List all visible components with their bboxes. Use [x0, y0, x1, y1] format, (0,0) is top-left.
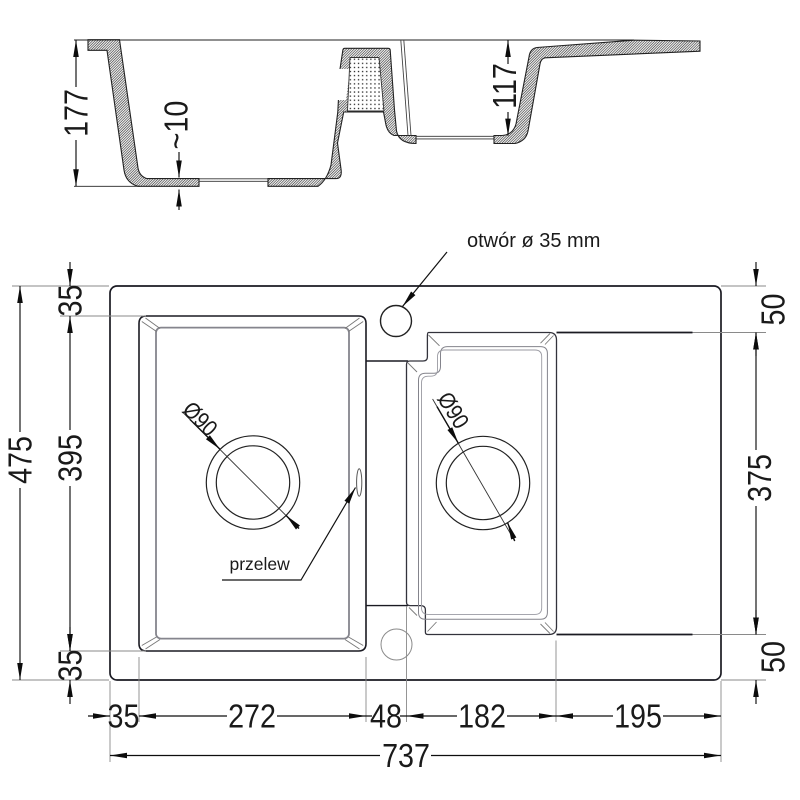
svg-text:35: 35: [52, 650, 89, 682]
svg-text:475: 475: [2, 436, 39, 484]
svg-text:35: 35: [52, 285, 89, 317]
svg-text:48: 48: [370, 698, 402, 735]
svg-text:przelew: przelew: [230, 554, 291, 574]
svg-text:~10: ~10: [158, 101, 195, 150]
svg-text:375: 375: [741, 454, 778, 502]
svg-text:182: 182: [458, 698, 506, 735]
svg-text:195: 195: [614, 698, 662, 735]
svg-text:35: 35: [108, 698, 140, 735]
svg-text:272: 272: [228, 698, 276, 735]
svg-text:50: 50: [755, 641, 792, 673]
svg-text:117: 117: [486, 63, 523, 109]
svg-text:177: 177: [58, 89, 95, 137]
svg-text:otwór ø 35 mm: otwór ø 35 mm: [467, 230, 600, 252]
svg-text:395: 395: [52, 434, 89, 482]
svg-text:50: 50: [755, 294, 792, 326]
svg-text:737: 737: [382, 737, 430, 774]
